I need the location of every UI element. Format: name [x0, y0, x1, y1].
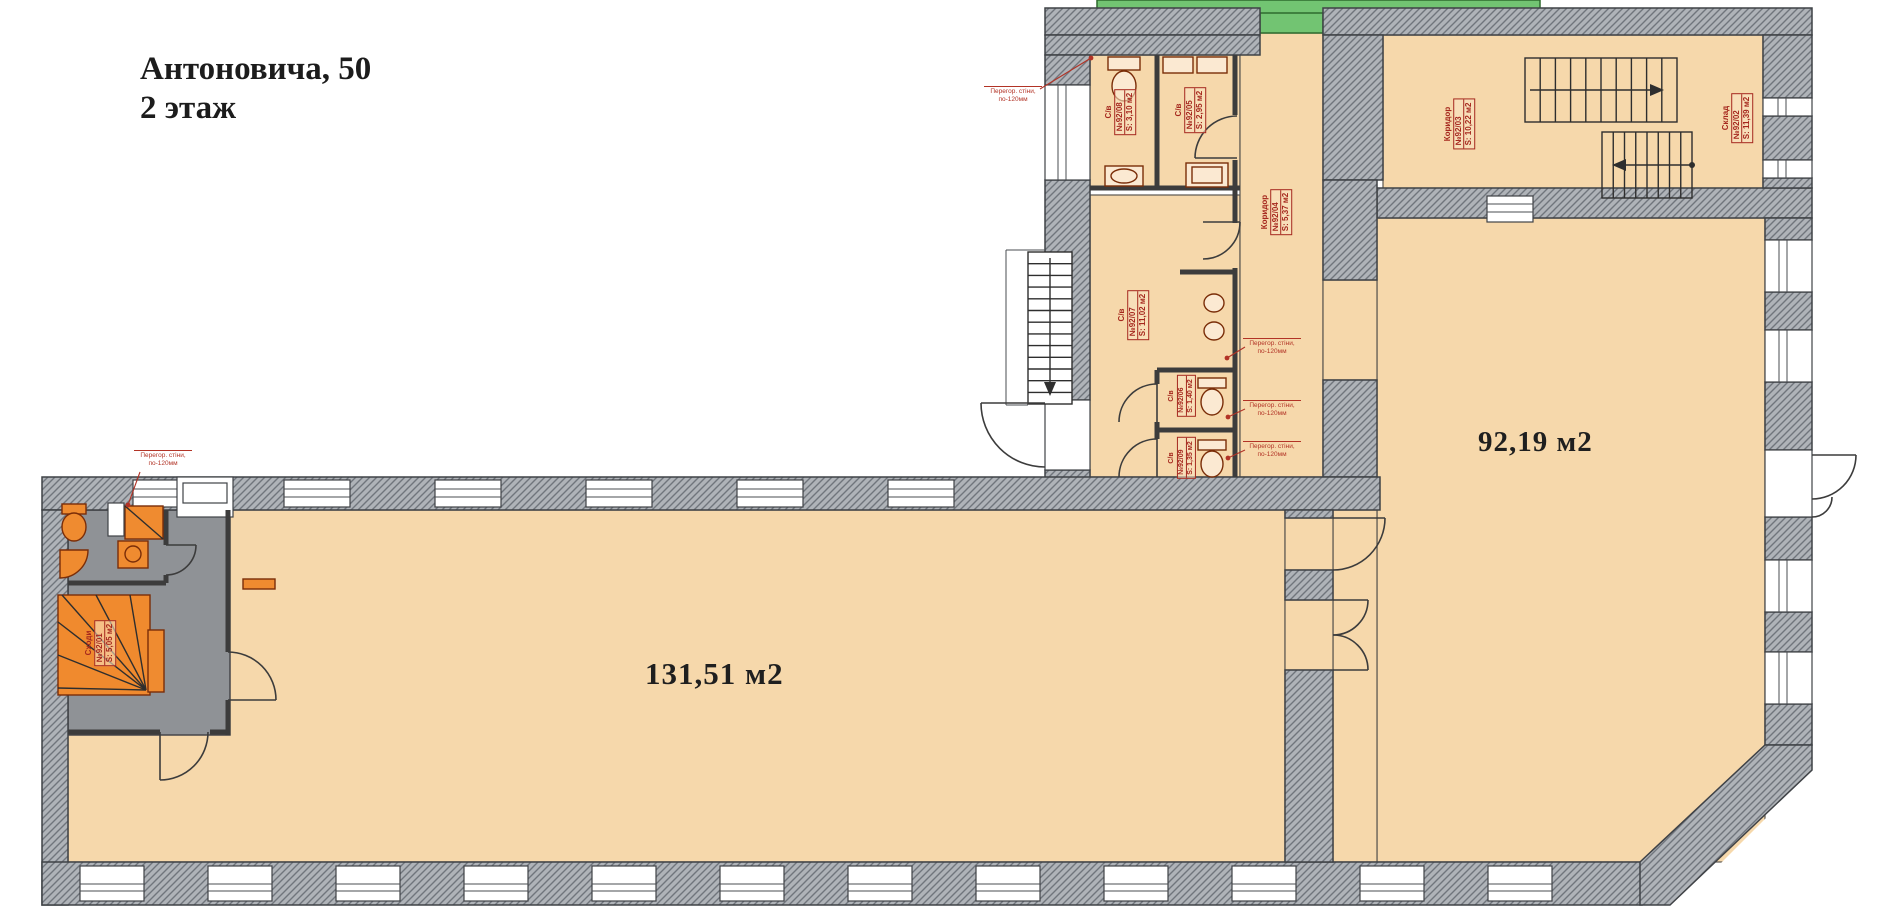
room-label-wc-92-07: С/в №92/07S: 11,02 м2	[1117, 290, 1149, 340]
partition-note: Перегор. стіни,по-120мм	[1243, 441, 1301, 459]
room-label-kor-92-03: Коридор №92/03S: 10,22 м2	[1443, 99, 1475, 150]
plan-address: Антоновича, 50	[140, 50, 371, 89]
room-label-wc-92-06: С/в №92/06S: 1,40 м2	[1168, 375, 1196, 417]
plan-floor-number: 2 этаж	[140, 89, 371, 128]
plan-title: Антоновича, 50 2 этаж	[140, 50, 371, 128]
partition-note: Перегор. стіни,по-120мм	[1243, 338, 1301, 356]
room-label-sklad-92-02: Склад №92/02S: 11,39 м2	[1721, 93, 1753, 143]
room-label-skhody-92-01: Сходи №92/01S: 5,05 м2	[84, 620, 116, 666]
room-label-kor-92-04: Коридор №92/04S: 5,37 м2	[1260, 189, 1292, 235]
partition-note: Перегор. стіни,по-120мм	[134, 450, 192, 468]
partition-note: Перегор. стіни,по-120мм	[1243, 400, 1301, 418]
floor-plan-drawing	[0, 0, 1900, 916]
room-area-label-92: 92,19 м2	[1478, 426, 1593, 459]
room-label-wc-92-08: С/в №92/08S: 3,10 м2	[1104, 89, 1136, 135]
room-area-label-131: 131,51 м2	[645, 656, 784, 692]
exterior-ladder-stairs	[1006, 250, 1072, 405]
partition-note: Перегор. стіни,по-120мм	[984, 86, 1042, 104]
floor-plan: Антоновича, 50 2 этаж 92,19 м2 131,51 м2…	[0, 0, 1900, 916]
room-label-wc-92-05: С/в №92/05S: 2,95 м2	[1174, 87, 1206, 133]
room-label-wc-92-09: С/в №92/09S: 1,35 м2	[1168, 437, 1196, 479]
